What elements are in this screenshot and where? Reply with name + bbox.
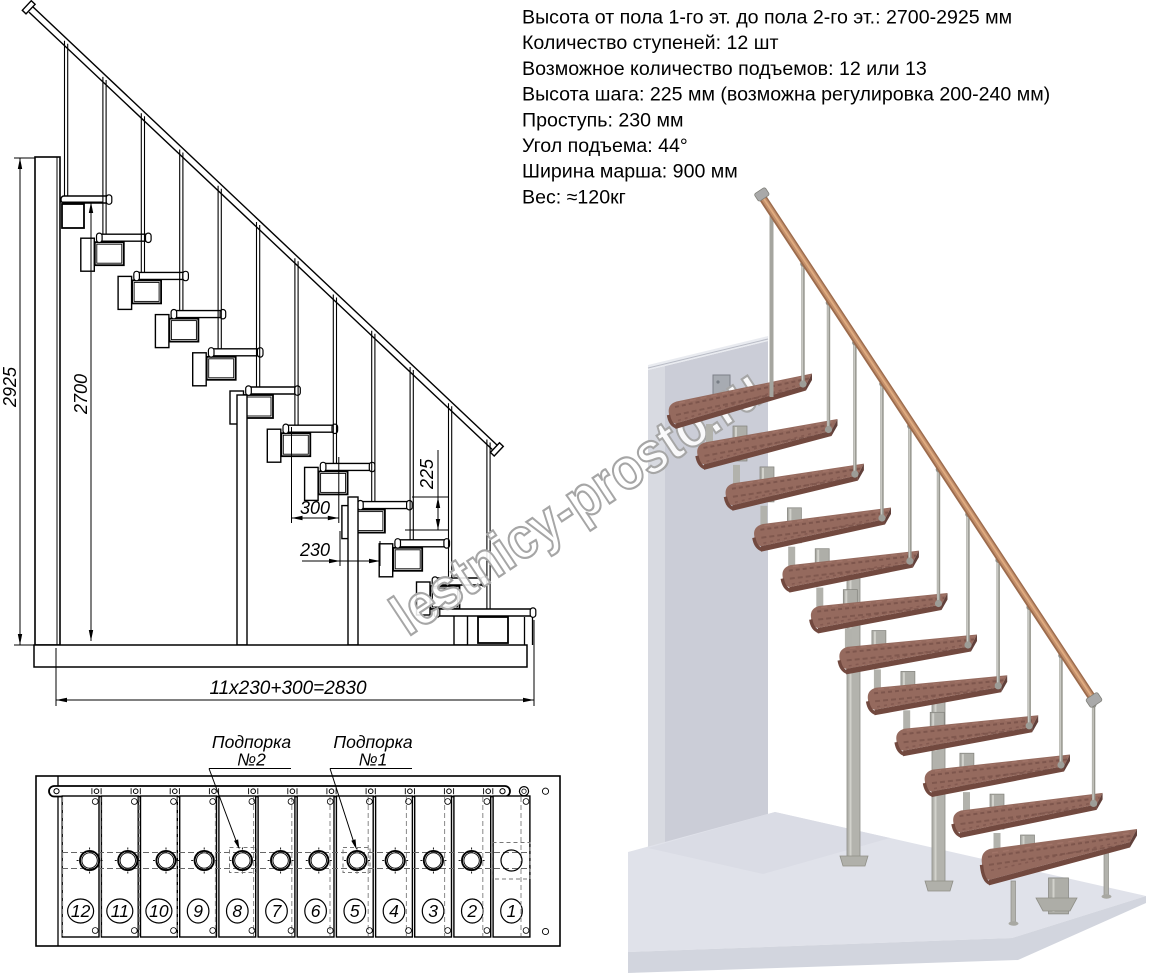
svg-text:230: 230: [299, 540, 330, 560]
svg-text:Угол подъема: 44°: Угол подъема: 44°: [522, 135, 688, 157]
svg-text:3: 3: [428, 901, 438, 921]
svg-text:Возможное количество подъемов:: Возможное количество подъемов: 12 или 13: [522, 58, 927, 80]
svg-text:8: 8: [232, 901, 242, 921]
svg-text:12: 12: [71, 901, 91, 921]
svg-text:10: 10: [149, 901, 169, 921]
svg-text:№2: №2: [237, 750, 266, 770]
svg-text:300: 300: [300, 498, 330, 518]
svg-text:9: 9: [193, 901, 203, 921]
svg-text:№1: №1: [359, 750, 388, 770]
svg-text:Количество ступеней: 12 шт: Количество ступеней: 12 шт: [522, 32, 778, 54]
svg-text:5: 5: [350, 901, 360, 921]
svg-text:Высота от пола 1-го эт. до пол: Высота от пола 1-го эт. до пола 2-го эт.…: [522, 7, 1012, 29]
svg-text:2: 2: [466, 901, 477, 921]
svg-text:2700: 2700: [71, 374, 91, 415]
svg-text:Вес: ≈120кг: Вес: ≈120кг: [522, 186, 626, 208]
svg-text:2925: 2925: [0, 366, 20, 408]
svg-text:Высота шага: 225 мм (возможна: Высота шага: 225 мм (возможна регулировк…: [522, 84, 1050, 106]
svg-text:1: 1: [507, 901, 517, 921]
svg-text:Ширина марша: 900 мм: Ширина марша: 900 мм: [522, 161, 738, 183]
svg-text:7: 7: [272, 901, 283, 921]
svg-text:Проступь: 230 мм: Проступь: 230 мм: [522, 109, 683, 131]
svg-text:11x230+300=2830: 11x230+300=2830: [209, 678, 367, 699]
svg-text:4: 4: [389, 901, 399, 921]
svg-text:6: 6: [311, 901, 321, 921]
svg-text:11: 11: [111, 901, 129, 921]
svg-text:225: 225: [417, 458, 437, 490]
